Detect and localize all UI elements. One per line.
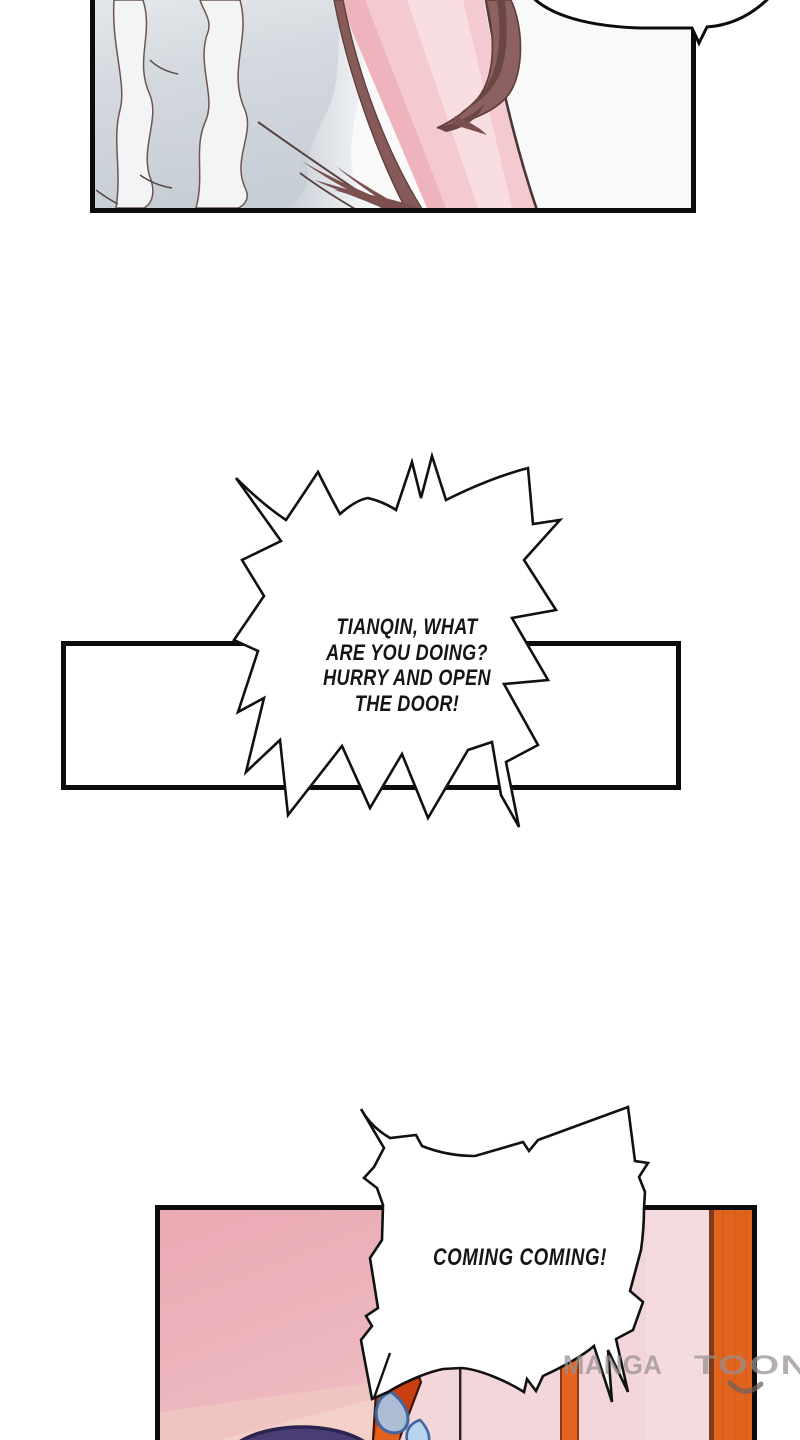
svg-text:MANGA: MANGA: [563, 1349, 662, 1380]
svg-text:TOON: TOON: [694, 1350, 800, 1380]
